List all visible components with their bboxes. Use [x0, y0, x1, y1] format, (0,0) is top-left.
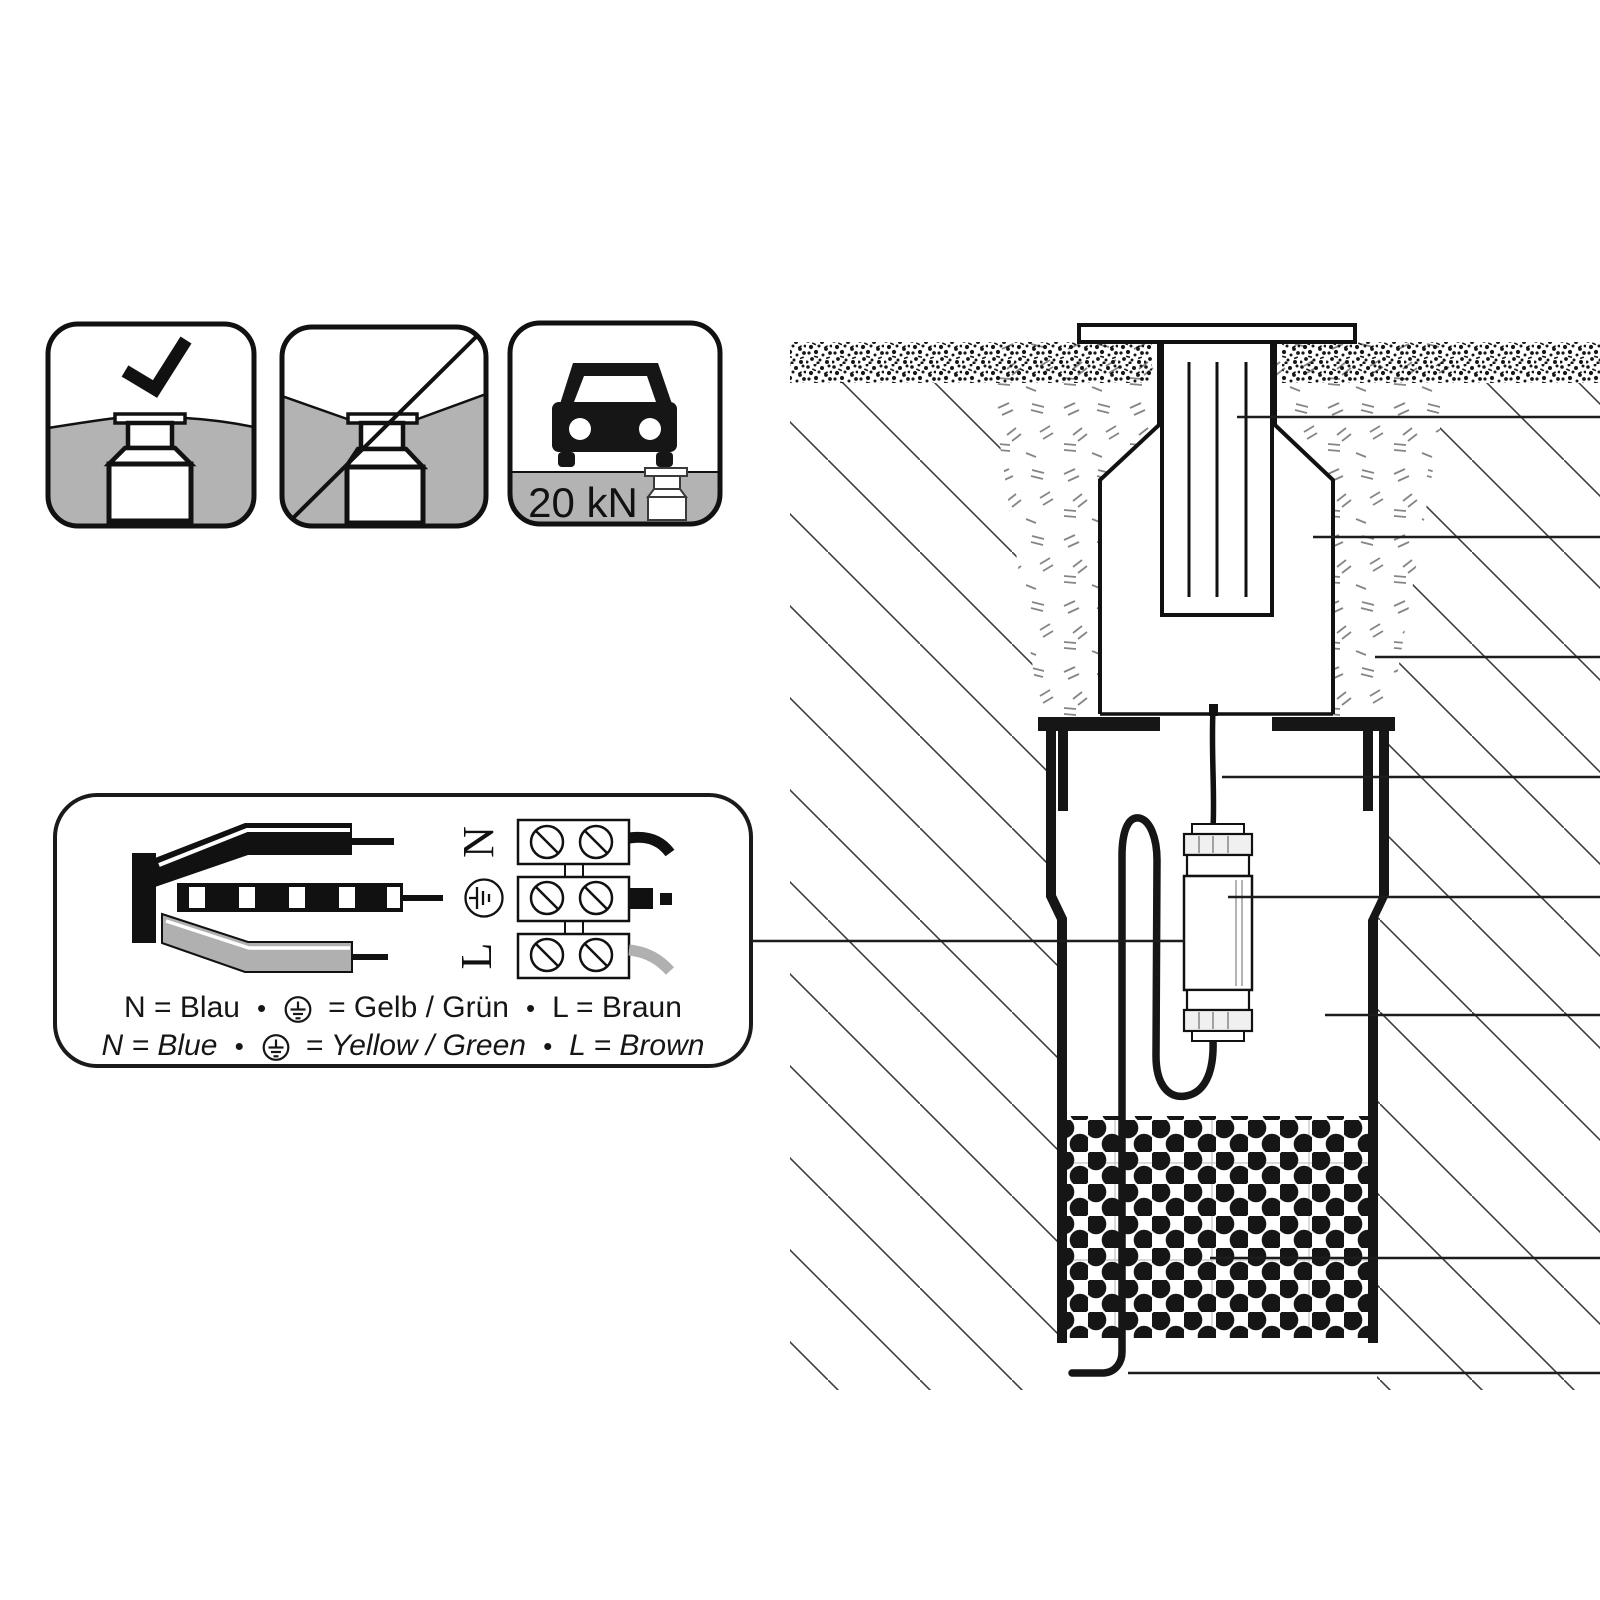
car-icon — [552, 363, 677, 467]
legend-en-n: N = Blue — [102, 1029, 218, 1063]
terminal-strip — [518, 820, 629, 978]
load-art: 20 kN — [507, 320, 723, 527]
wire-pin-bottom — [352, 954, 388, 960]
pictogram-flush-ok — [45, 321, 257, 529]
legend-bullet: • — [257, 993, 266, 1024]
fixture-body — [347, 467, 423, 523]
topsoil-texture-left — [790, 342, 1152, 383]
legend-en-l: L = Brown — [569, 1029, 704, 1063]
legend-bullet: • — [543, 1031, 552, 1062]
wiring-diagram-box: N L N = Blau • — [53, 793, 753, 1068]
legend-de-n: N = Blau — [124, 991, 240, 1025]
wire-pin-top — [352, 838, 394, 845]
wiring-legend-en: N = Blue • = Yellow / Green • L = Brown — [57, 1029, 749, 1063]
flange-pin-right — [1363, 731, 1373, 811]
legend-en-earth: = Yellow / Green — [306, 1029, 526, 1063]
cable-fanout — [132, 823, 443, 972]
fixture-body — [109, 464, 191, 521]
gravel-bed — [1067, 1116, 1368, 1338]
wiring-legend-de: N = Blau • = Gelb / Grün • L = Braun — [57, 991, 749, 1025]
manual-page: 20 kN — [0, 0, 1600, 1600]
earth-symbol — [466, 880, 503, 917]
legend-bullet: • — [526, 993, 535, 1024]
cable-connector — [1184, 824, 1252, 1041]
wire-pin-middle — [403, 895, 443, 901]
flange-pin-left — [1058, 731, 1068, 811]
legend-bullet: • — [234, 1031, 243, 1062]
earth-symbol — [283, 993, 313, 1023]
supply-cable-upper — [1212, 710, 1213, 828]
load-rating-label: 20 kN — [528, 479, 638, 526]
installation-cross-section — [740, 300, 1600, 1600]
terminal-label-n: N — [454, 826, 503, 858]
cover-plate — [1079, 325, 1355, 342]
forbidden-art — [279, 324, 489, 529]
fixture-neck — [128, 423, 172, 448]
legend-de-earth: = Gelb / Grün — [328, 991, 509, 1025]
topsoil-texture-right — [1282, 342, 1600, 383]
terminal-label-l: L — [452, 943, 501, 970]
outgoing-wires — [629, 837, 672, 971]
earth-symbol — [261, 1031, 291, 1061]
buried-fixture — [645, 468, 687, 520]
flush-ok-art — [45, 321, 257, 529]
pictogram-load-rating: 20 kN — [507, 320, 723, 527]
pictogram-recessed-forbidden — [279, 324, 489, 529]
legend-de-l: L = Braun — [552, 991, 682, 1025]
